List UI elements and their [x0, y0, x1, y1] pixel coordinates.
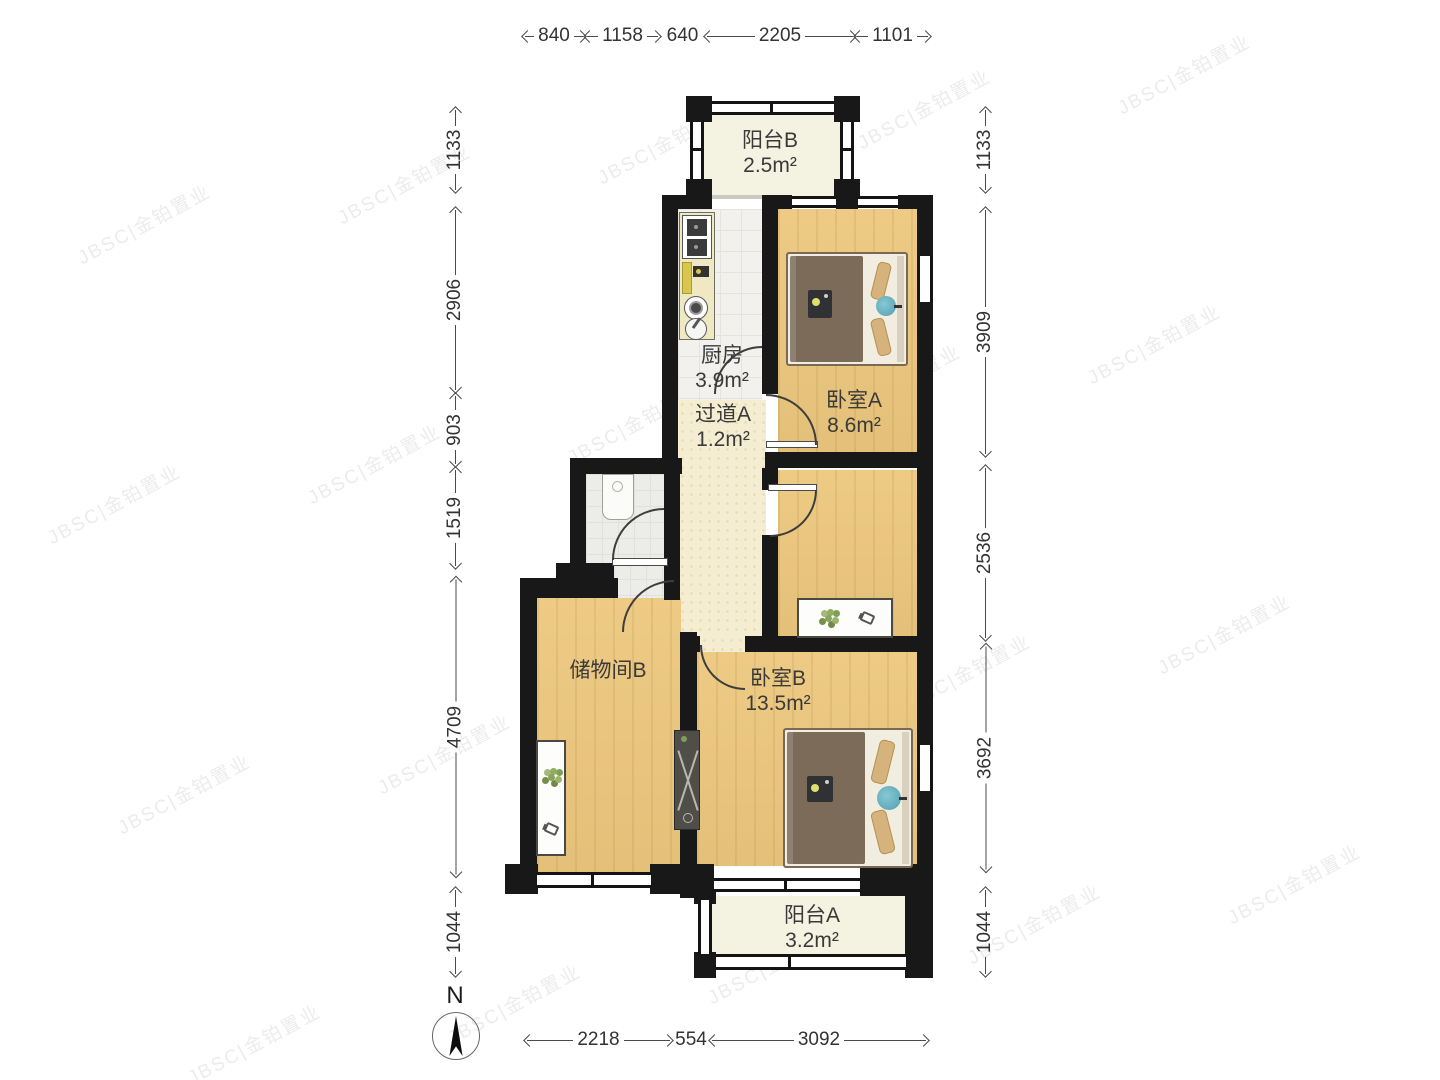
watermark: JBSC|金铂置业	[1112, 27, 1255, 120]
room-label-hallway-a: 过道A1.2m²	[695, 402, 751, 452]
dim-arrowhead	[449, 886, 462, 899]
washbasin-icon	[602, 474, 634, 520]
dim-left-903: 903	[444, 394, 466, 466]
wall-top	[762, 195, 792, 209]
dim-left-4709: 4709	[445, 578, 467, 877]
window-mullion	[591, 875, 594, 885]
wardrobe-icon	[674, 730, 700, 830]
window-bedroom-a-top-1	[792, 196, 836, 208]
dim-arrowhead	[449, 206, 462, 219]
dim-arrowhead	[979, 206, 992, 219]
wall-post	[686, 96, 712, 122]
stove-burner-icon	[687, 219, 707, 236]
dim-arrowhead	[703, 30, 716, 43]
wall-post	[834, 96, 860, 122]
dim-line	[455, 210, 456, 275]
chair-icon	[544, 822, 560, 836]
kitchen-control-icon	[693, 266, 709, 277]
wall-top	[836, 195, 858, 209]
dim-arrowhead	[521, 30, 534, 43]
dim-arrowhead	[979, 861, 992, 874]
dim-line	[712, 1040, 794, 1041]
dim-right-2536: 2536	[974, 466, 996, 640]
dim-arrowhead	[449, 576, 462, 589]
desk-storage-room	[536, 740, 566, 856]
plant-icon	[825, 615, 832, 622]
dim-top-1101: 1101	[855, 25, 930, 47]
window-mullion	[770, 104, 773, 112]
watermark: JBSC|金铂置业	[302, 417, 445, 510]
stove-burner-icon	[687, 239, 707, 256]
dim-line	[985, 647, 986, 733]
dim-arrowhead	[449, 965, 462, 978]
wall-middle-left	[762, 535, 778, 638]
wall-bedroom-b-north-stub	[680, 636, 700, 652]
dim-line	[455, 580, 456, 702]
watermark: JBSC|金铂置业	[1152, 587, 1295, 680]
sink-icon	[685, 318, 707, 340]
pillow-icon	[870, 317, 893, 357]
watermark: JBSC|金铂置业	[42, 457, 185, 550]
dim-arrowhead	[979, 445, 992, 458]
dim-arrowhead	[919, 30, 932, 43]
dim-left-1044: 1044	[444, 888, 466, 976]
dim-left-1133: 1133	[444, 108, 466, 192]
dim-right-1133: 1133	[974, 108, 996, 192]
dim-line	[985, 783, 986, 869]
watermark: JBSC|金铂置业	[72, 177, 215, 270]
window-mullion	[693, 148, 701, 151]
dim-arrowhead	[449, 392, 462, 405]
pillow-icon	[870, 809, 896, 856]
dim-arrowhead	[979, 643, 992, 656]
dim-arrowhead	[708, 1034, 721, 1047]
dim-right-3692: 3692	[975, 645, 997, 872]
dim-arrowhead	[523, 1034, 536, 1047]
compass-needle-icon	[445, 1016, 467, 1056]
dim-line	[985, 210, 986, 307]
bed-tray-icon	[808, 290, 832, 318]
dim-left-2906: 2906	[444, 208, 466, 392]
plant-icon	[548, 774, 555, 781]
dim-arrowhead	[979, 629, 992, 642]
dim-line	[455, 752, 456, 874]
watermark: JBSC|金铂置业	[1222, 837, 1365, 930]
wall-bath-top	[570, 458, 682, 474]
dim-arrowhead	[449, 106, 462, 119]
wall-storage-left	[520, 578, 537, 874]
dim-bottom-2218: 2218	[525, 1029, 672, 1051]
bed-headboard	[897, 256, 904, 362]
pillow-icon	[870, 261, 893, 301]
bed-tray-icon	[807, 776, 833, 802]
wall-hall-left	[664, 458, 680, 600]
room-label-balcony-b: 阳台B2.5m²	[742, 128, 798, 178]
dim-top-640: 640	[660, 25, 705, 47]
window-bedroom-a-top-2	[858, 196, 898, 208]
watermark: JBSC|金铂置业	[112, 747, 255, 840]
bed-bedroom-a	[786, 252, 908, 366]
window-bedroom-b-balcony	[714, 878, 860, 892]
wall-bedroom-b-north	[745, 636, 933, 652]
wall-kitchen-left	[662, 195, 678, 460]
pillow-icon	[870, 739, 896, 786]
wall-post	[694, 952, 716, 978]
window-mullion	[784, 881, 787, 889]
window-bedroom-a-right	[917, 256, 933, 302]
dim-line	[985, 357, 986, 454]
dim-arrowhead	[979, 886, 992, 899]
desk-middle-room	[797, 598, 893, 638]
window-balcony-a-left	[698, 900, 712, 954]
dim-arrowhead	[449, 866, 462, 879]
dim-arrowhead	[449, 466, 462, 479]
floorplan-canvas: JBSC|金铂置业 JBSC|金铂置业 JBSC|金铂置业 JBSC|金铂置业 …	[0, 0, 1440, 1080]
round-cushion-icon	[877, 786, 901, 810]
room-label-bedroom-b: 卧室B13.5m²	[745, 666, 810, 716]
wall-bath-left	[570, 458, 586, 580]
window-balcony-b-right	[840, 122, 854, 179]
washer-icon	[684, 296, 708, 320]
wall-bedroom-a-south	[765, 452, 933, 468]
room-label-bedroom-a: 卧室A8.6m²	[826, 388, 882, 438]
wall-balcony-a-right	[905, 884, 933, 978]
dim-top-840: 840	[523, 25, 585, 47]
dim-arrowhead	[979, 965, 992, 978]
dim-arrowhead	[583, 30, 596, 43]
dim-arrowhead	[979, 464, 992, 477]
watermark: JBSC|金铂置业	[182, 997, 325, 1080]
dim-left-1519: 1519	[444, 468, 466, 568]
dim-bottom-3092: 3092	[710, 1029, 928, 1051]
window-bedroom-b-right	[917, 745, 933, 791]
dim-bottom-554: 554	[672, 1029, 710, 1051]
dim-arrowhead	[917, 1034, 930, 1047]
dim-top-1158: 1158	[585, 25, 660, 47]
compass-north-label: N	[432, 982, 478, 1010]
dim-right-3909: 3909	[974, 208, 996, 456]
room-label-kitchen: 厨房3.9m²	[695, 343, 749, 393]
chair-icon	[860, 611, 876, 625]
room-label-balcony-a: 阳台A3.2m²	[784, 903, 840, 953]
wall-kitchen-divider	[762, 209, 778, 394]
compass-circle	[432, 1012, 480, 1060]
watermark: JBSC|金铂置业	[1082, 297, 1225, 390]
window-balcony-b-top	[712, 101, 834, 115]
dim-arrowhead	[979, 106, 992, 119]
kitchen-cabinet-icon	[682, 262, 692, 294]
stove-icon	[682, 215, 712, 259]
room-label-storage-b: 储物间B	[569, 658, 646, 683]
window-storage-bottom	[537, 872, 651, 888]
window-balcony-a-bottom	[716, 954, 906, 970]
compass: N	[432, 982, 478, 1060]
dim-arrowhead	[979, 181, 992, 194]
wall-post	[505, 864, 538, 894]
dim-right-1044: 1044	[974, 888, 996, 976]
dim-arrowhead	[449, 181, 462, 194]
window-mullion	[788, 957, 791, 967]
dim-arrowhead	[449, 557, 462, 570]
bed-bedroom-b	[783, 728, 913, 868]
dim-line	[844, 1040, 926, 1041]
dim-arrowhead	[853, 30, 866, 43]
window-balcony-b-left	[690, 122, 704, 179]
dim-top-2205: 2205	[705, 25, 855, 47]
window-mullion	[843, 148, 851, 151]
round-cushion-icon	[876, 296, 896, 316]
